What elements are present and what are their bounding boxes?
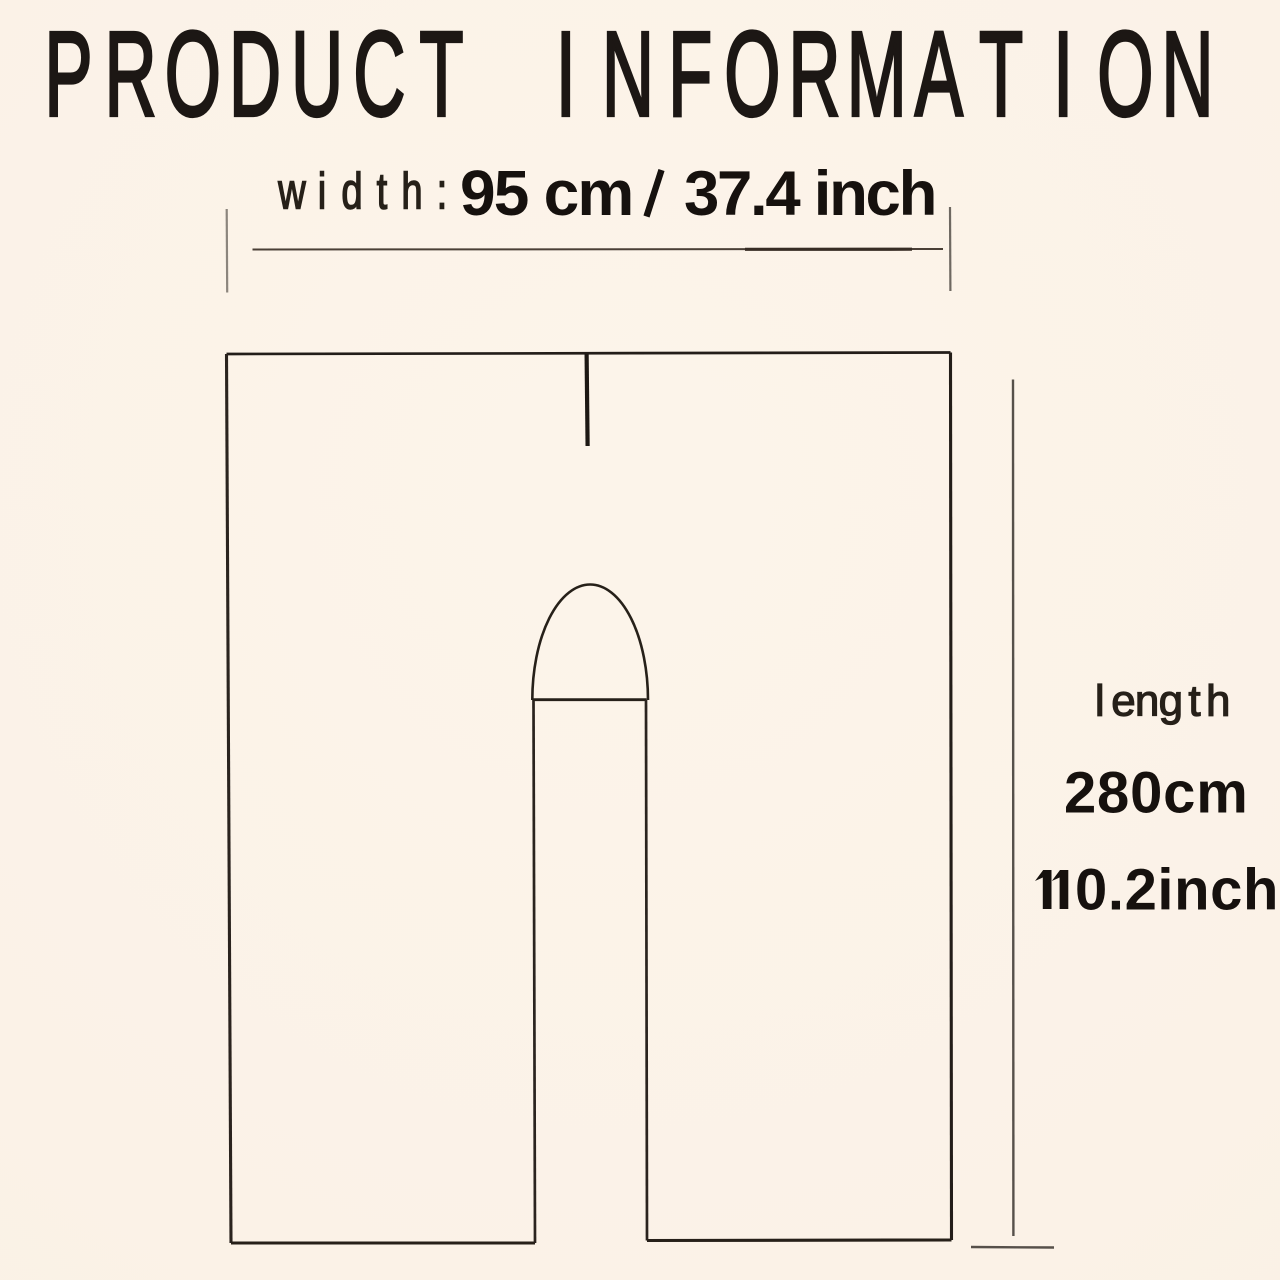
svg-text:37.4 inch: 37.4 inch xyxy=(684,159,935,229)
svg-text:length: length xyxy=(1095,677,1231,726)
svg-text:PRODUCT INFORMATION: PRODUCT INFORMATION xyxy=(44,8,1213,143)
svg-text:width:: width: xyxy=(277,162,447,220)
svg-text:0.2inch: 0.2inch xyxy=(1075,858,1279,923)
svg-text:95 cm: 95 cm xyxy=(460,157,632,229)
svg-text:280cm: 280cm xyxy=(1064,761,1249,826)
